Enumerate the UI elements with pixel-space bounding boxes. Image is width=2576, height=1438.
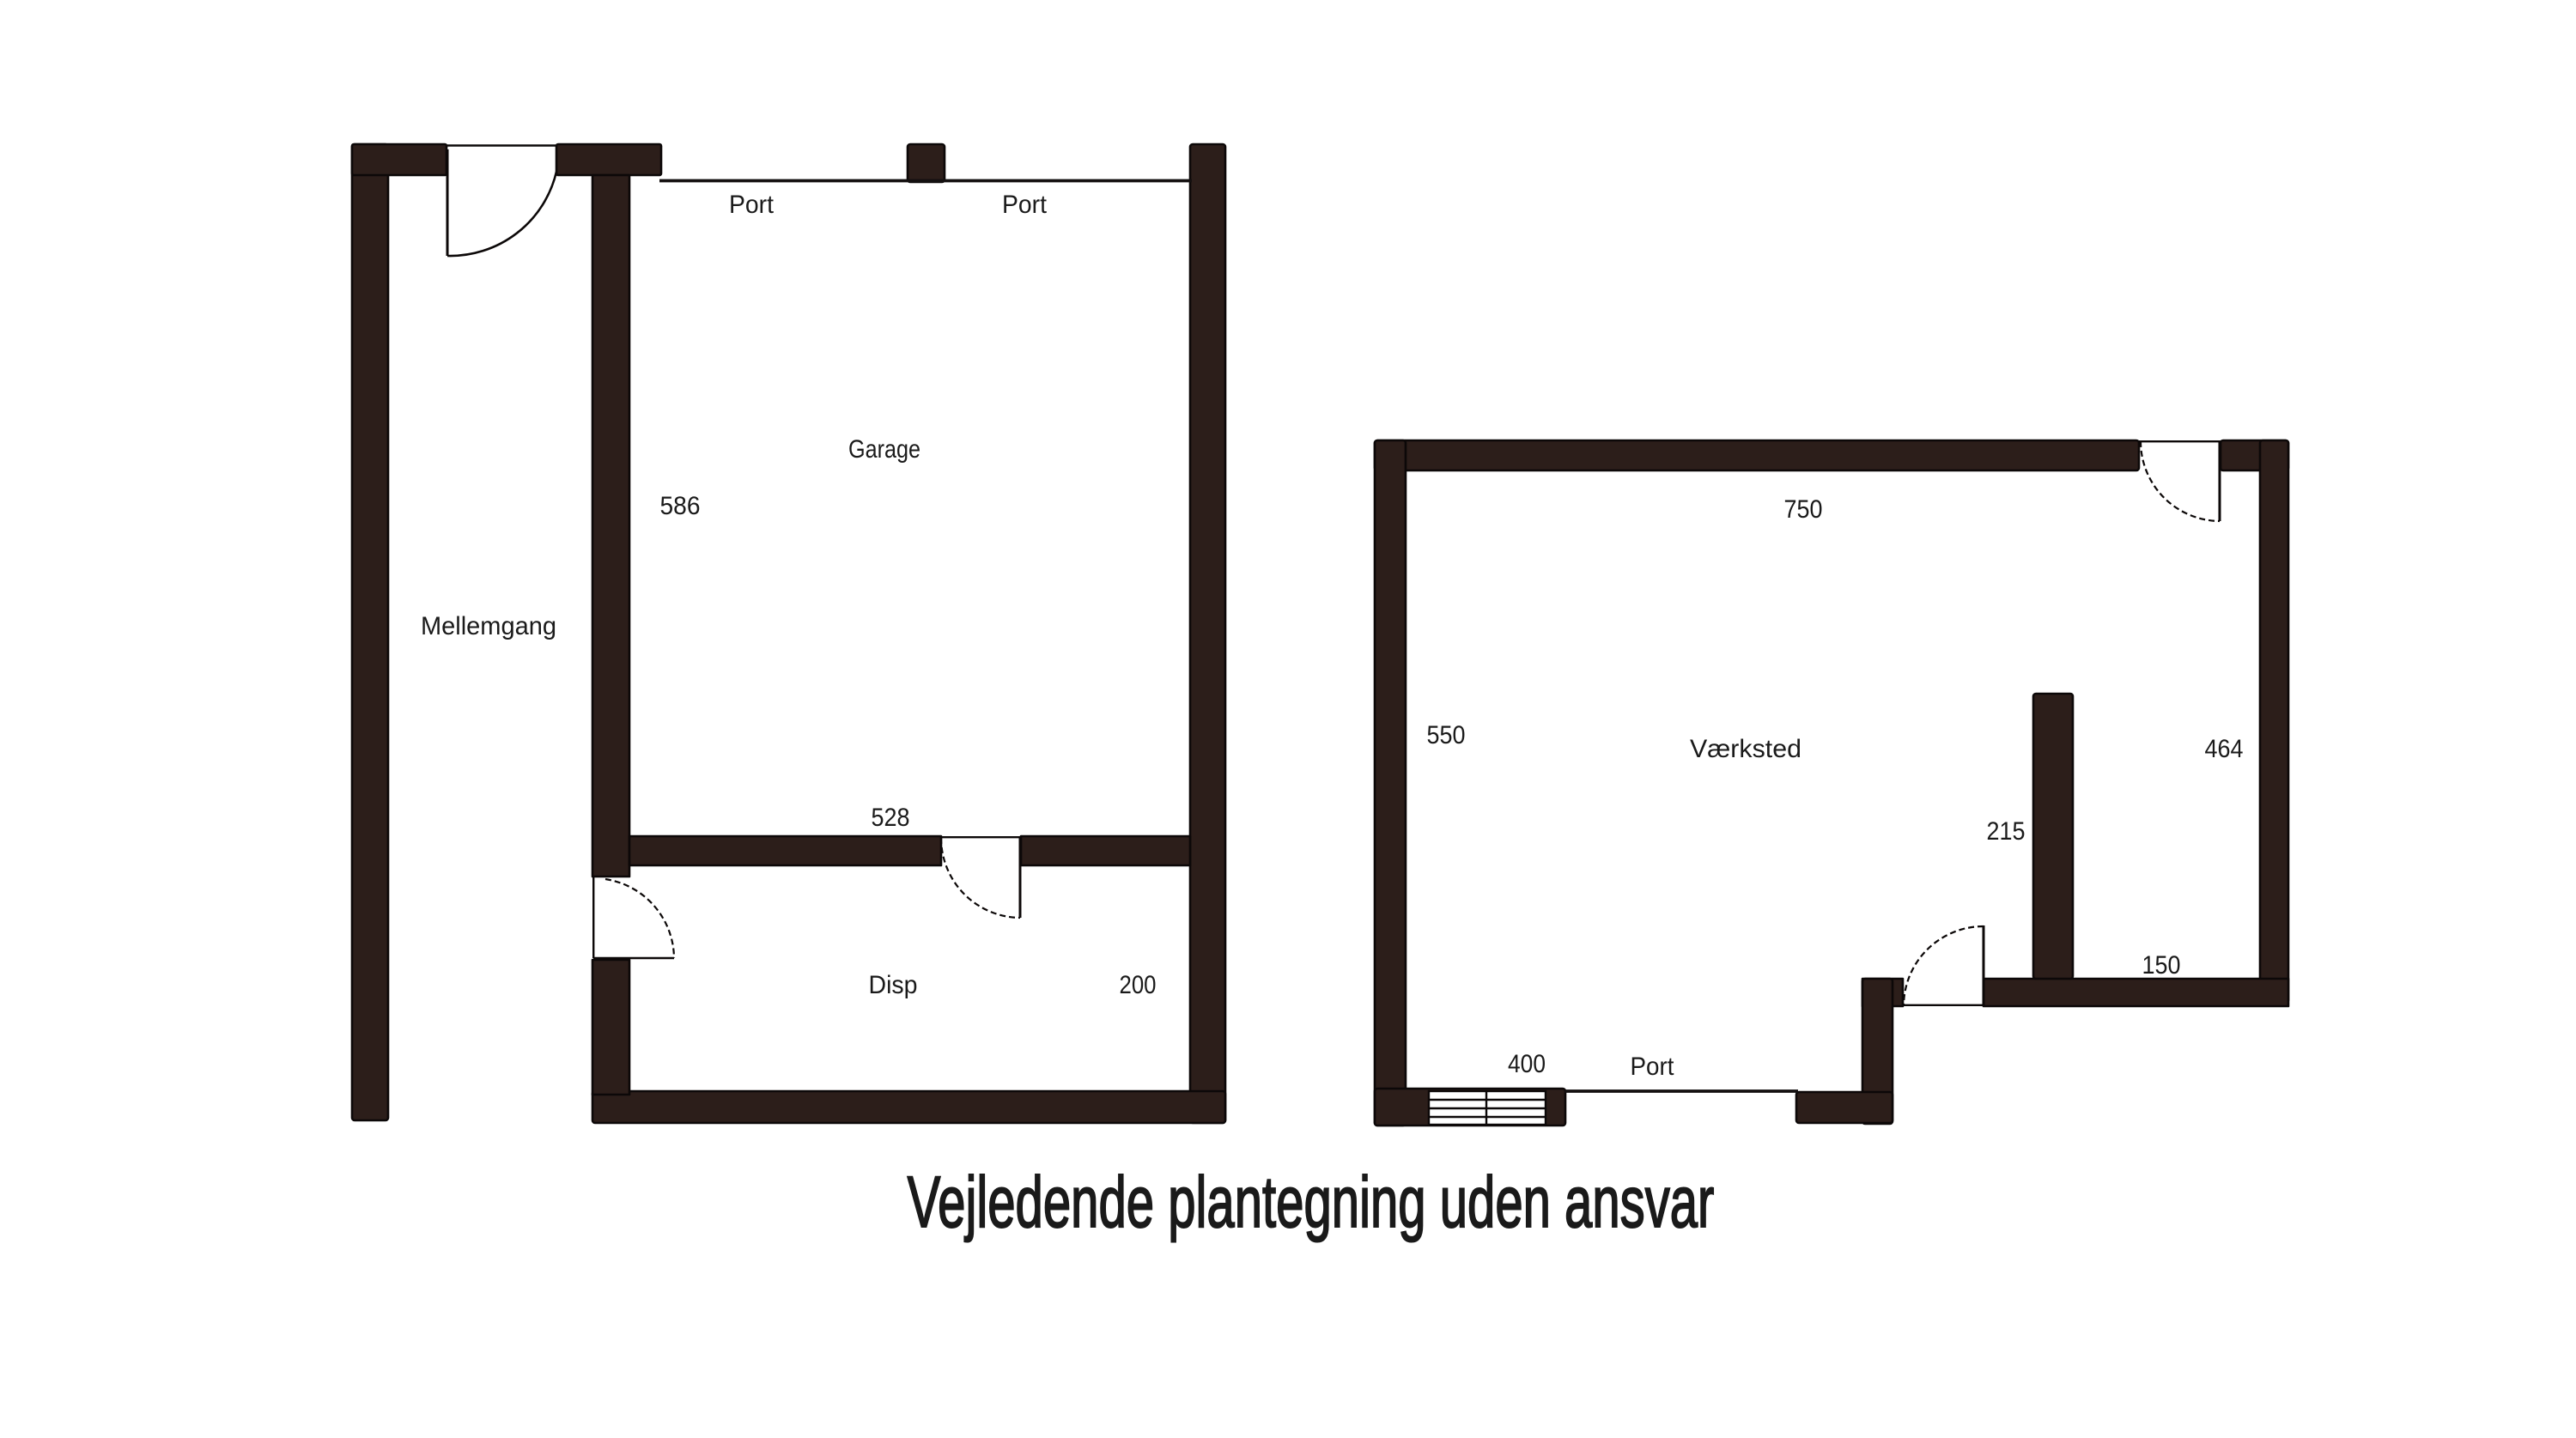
svg-text:550: 550: [1427, 721, 1466, 749]
svg-text:Disp: Disp: [869, 971, 918, 999]
svg-text:464: 464: [2205, 735, 2244, 763]
svg-text:Garage: Garage: [848, 435, 920, 464]
svg-text:200: 200: [1120, 971, 1157, 999]
svg-text:400: 400: [1508, 1050, 1546, 1078]
svg-text:Port: Port: [1002, 191, 1048, 219]
svg-text:Værksted: Værksted: [1690, 735, 1801, 763]
svg-text:215: 215: [1987, 817, 2026, 846]
svg-text:Vejledende plantegning uden an: Vejledende plantegning uden ansvar: [908, 1163, 1715, 1243]
svg-text:Port: Port: [1631, 1053, 1675, 1081]
svg-text:586: 586: [660, 492, 701, 520]
svg-text:Port: Port: [729, 191, 775, 219]
svg-text:528: 528: [872, 804, 910, 832]
svg-text:Mellemgang: Mellemgang: [421, 612, 556, 640]
svg-text:150: 150: [2142, 951, 2181, 980]
svg-text:750: 750: [1784, 495, 1823, 524]
